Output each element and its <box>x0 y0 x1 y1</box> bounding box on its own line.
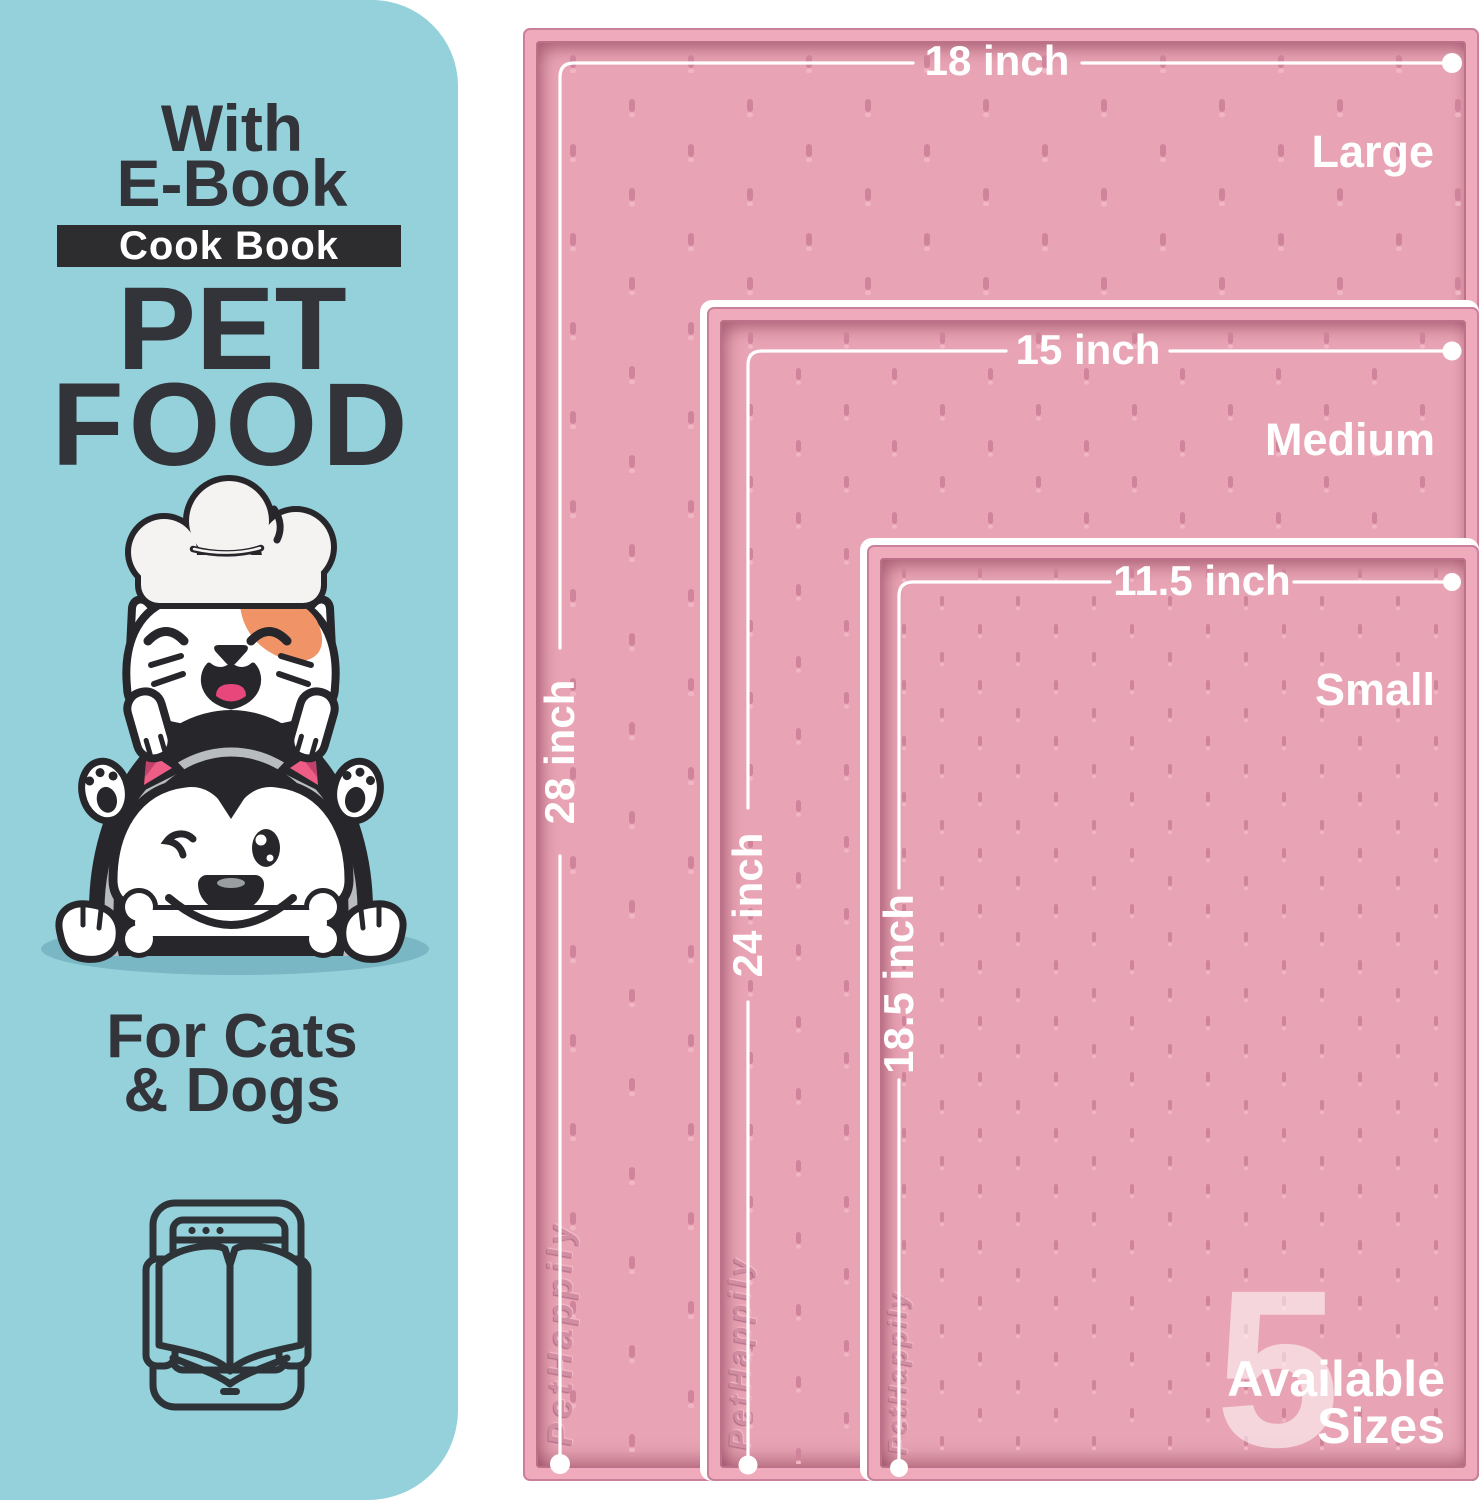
svg-text:Large: Large <box>1311 126 1434 177</box>
svg-text:Small: Small <box>1315 664 1435 715</box>
svg-text:11.5 inch: 11.5 inch <box>1113 557 1290 604</box>
svg-text:24 inch: 24 inch <box>724 833 771 978</box>
svg-text:15 inch: 15 inch <box>1016 326 1161 373</box>
svg-text:28 inch: 28 inch <box>536 680 583 825</box>
svg-text:Medium: Medium <box>1265 414 1435 465</box>
svg-text:18 inch: 18 inch <box>925 37 1070 84</box>
svg-text:18.5 inch: 18.5 inch <box>875 894 922 1074</box>
